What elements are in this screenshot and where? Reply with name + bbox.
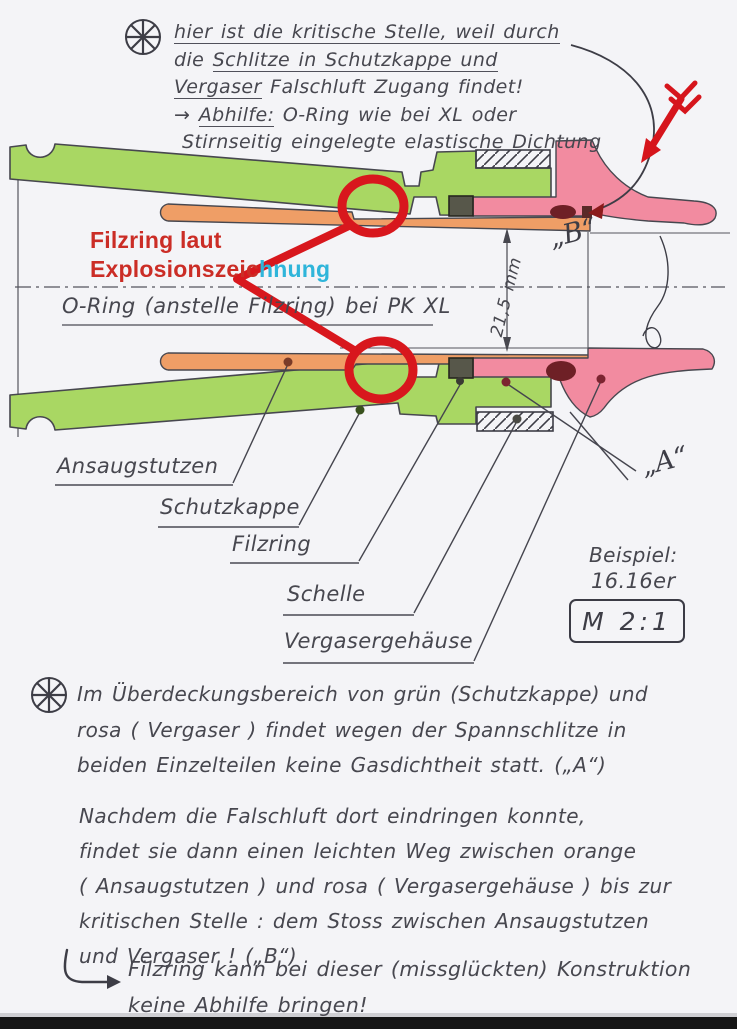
red-marker-arrow (641, 83, 699, 163)
scale-label: M 2:1 (582, 607, 672, 636)
schutzkappe-dot (356, 406, 365, 415)
filzring-upper-section (449, 196, 473, 216)
asterisk-icon (32, 678, 66, 712)
footnote-line-2: keine Abhilfe bringen! (128, 987, 691, 1023)
filzring-lower-section (449, 358, 473, 378)
schelle-dot (513, 415, 522, 424)
paragraph-2-line-3: ( Ansaugstutzen ) und rosa ( Vergasergeh… (79, 869, 671, 904)
paragraph-1-line-3: beiden Einzelteilen keine Gasdichtheit s… (77, 748, 648, 784)
top-note: hier ist die kritische Stelle, weil durc… (174, 19, 601, 157)
example-value: 16.16er (591, 569, 675, 593)
label-ansaugstutzen: Ansaugstutzen (57, 454, 218, 478)
point-b-wrap: „B“ (546, 224, 594, 255)
leak-spot-lower (546, 361, 576, 381)
filzring-dot (456, 377, 464, 385)
filzring-overlay-note-line-2: Explosionszeichnung (90, 256, 330, 283)
label-schelle: Schelle (287, 582, 366, 606)
point-a-dot (502, 378, 511, 387)
scanned-page: hier ist die kritische Stelle, weil durc… (0, 0, 737, 1029)
paragraph-1-line-2: rosa ( Vergaser ) findet wegen der Spann… (77, 713, 648, 749)
label-filzring: Filzring (232, 532, 311, 556)
footnote: Filzring kann bei dieser (missglückten) … (128, 951, 691, 1023)
label-schutzkappe: Schutzkappe (160, 495, 300, 519)
paragraph-2-line-2: findet sie dann einen leichten Weg zwisc… (79, 834, 671, 869)
top-note-line-3: Vergaser Falschluft Zugang findet! (174, 74, 601, 102)
paragraph-1: Im Überdeckungsbereich von grün (Schutzk… (77, 677, 648, 784)
vergasergehaeuse-dot (597, 375, 606, 384)
filzring-overlay-note-line-1: Filzring laut (90, 227, 222, 254)
paragraph-1-line-1: Im Überdeckungsbereich von grün (Schutzk… (77, 677, 648, 713)
example-title: Beispiel: (589, 543, 677, 567)
top-note-line-5: Stirnseitig eingelegte elastische Dichtu… (174, 129, 601, 157)
top-note-line-4: → Abhilfe: O-Ring wie bei XL oder (174, 102, 601, 130)
footnote-line-1: Filzring kann bei dieser (missglückten) … (128, 951, 691, 987)
top-note-line-1: hier ist die kritische Stelle, weil durc… (174, 19, 601, 47)
dimension-arrow-up (503, 228, 511, 243)
scale-box: M 2:1 (569, 599, 685, 643)
ansaugstutzen-dot (284, 358, 293, 367)
paragraph-2-line-1: Nachdem die Falschluft dort eindringen k… (79, 799, 671, 834)
point-a-wrap: „A“ (638, 452, 685, 483)
label-vergasergehaeuse: Vergasergehäuse (284, 629, 473, 653)
top-note-line-2: die Schlitze in Schutzkappe und (174, 47, 601, 75)
break-line-squiggle (643, 236, 668, 348)
paragraph-2: Nachdem die Falschluft dort eindringen k… (79, 799, 671, 974)
asterisk-icon (126, 20, 160, 54)
paragraph-2-line-4: kritischen Stelle : dem Stoss zwischen A… (79, 904, 671, 939)
oring-note: O-Ring (anstelle Filzring) bei PK XL (62, 294, 451, 318)
overlay-cyan-part: hnung (259, 256, 330, 282)
overlay-red-part: Explosionszeic (90, 256, 259, 282)
dimension-label-wrap: 21,5 mm (487, 334, 568, 354)
